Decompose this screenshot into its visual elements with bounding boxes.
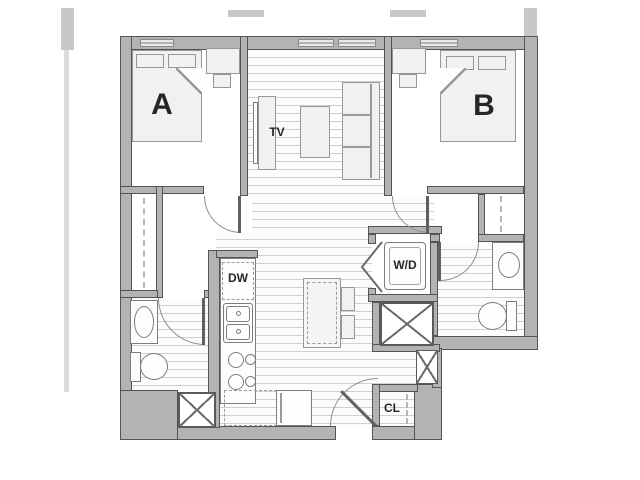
wall-wd-north [368,226,442,234]
bathroom-b-toilet-bowl [478,302,507,330]
context-stub-top-left [61,8,74,50]
tv-screen [253,102,258,164]
wall-east [524,36,538,350]
bed-a-pillow-2 [168,54,196,68]
bed-b-pillow-2 [478,56,506,70]
desk-a [206,48,240,74]
bedroom-b-label: B [462,86,506,126]
wd-bifold-door [358,238,384,296]
context-line-left [64,10,69,392]
context-stub-top-2 [390,10,426,17]
wall-closet-a-east [156,186,163,298]
sofa-back-line [370,84,372,178]
bathroom-a-sink [134,306,154,338]
mechanical-chase-small [416,350,438,384]
window-bedroom-b [420,39,458,47]
window-bedroom-a [140,39,174,47]
bathroom-b-toilet-tank [506,301,517,331]
wd-bifold-door-lines [362,242,382,292]
bedroom-a-door-arc [204,196,241,233]
bathroom-a-toilet-bowl [140,353,168,380]
sink-drain-1 [236,311,241,316]
desk-b [392,48,426,74]
wall-kitchen-nook-north [216,250,258,258]
entry-closet-rod [406,394,408,424]
desk-a-chair [213,74,231,88]
mechanical-chase-center [380,302,434,346]
bedroom-a-door-leaf [238,196,241,233]
sofa [342,82,380,180]
stove-burner-1 [228,352,244,368]
context-stub-top-1 [228,10,264,17]
wall-bathroom-b-south [426,336,538,350]
wall-block-bottom-right [414,384,442,440]
tv-label: TV [264,124,290,140]
sofa-cushion-line-1 [343,114,371,116]
wall-bedroom-b-south [427,186,524,194]
island-stool-1 [341,287,355,311]
stove-burner-3 [228,374,244,390]
island-stool-2 [341,315,355,339]
bedroom-a-label: A [140,85,184,125]
window-living-1 [298,39,334,47]
bathroom-b-door-leaf [438,242,441,281]
closet-b-rod [500,196,502,232]
desk-b-chair [399,74,417,88]
window-living-2 [338,39,376,47]
closet-a-rod [143,198,145,288]
floor-plan: A B TV DW W/D CL [0,0,640,480]
wall-block-bottom-left [120,390,178,440]
stove-burner-4 [245,376,256,387]
dishwasher-label: DW [222,270,254,286]
bed-a-pillow-1 [136,54,164,68]
mechanical-chase-bottom-left [178,392,216,428]
sink-drain-2 [236,329,241,334]
kitchen-island-counter-edge [307,282,337,344]
wall-bedroom-b-west [384,36,392,196]
wall-bedroom-a-east [240,36,248,196]
fridge-door-line [280,393,282,423]
stove-burner-2 [245,354,256,365]
wall-bathroom-b-north-1 [430,234,440,242]
coffee-table [300,106,330,158]
entry-closet-label: CL [378,400,406,416]
washer-dryer-label: W/D [384,256,426,274]
bathroom-a-door-leaf [202,298,205,345]
bedroom-b-door-leaf [426,196,429,233]
sofa-cushion-line-2 [343,146,371,148]
wall-bathroom-b-north-2 [478,234,524,242]
wall-bathroom-a-north-1 [120,290,158,298]
bathroom-b-sink [498,252,520,278]
